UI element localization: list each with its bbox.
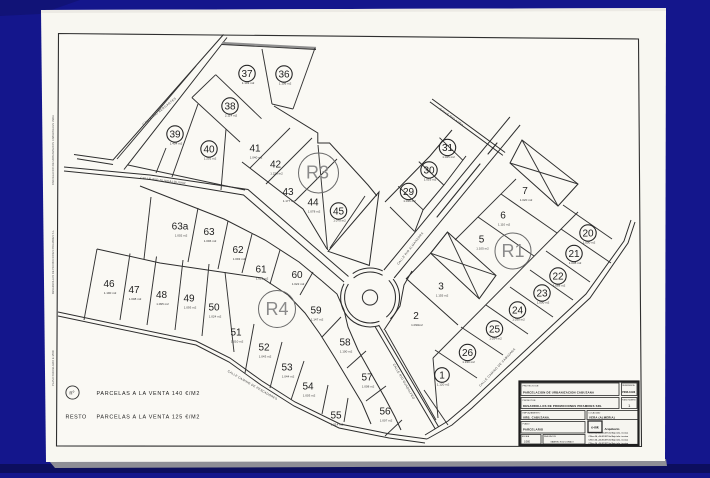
svg-text:C/Vera 34, +34-91-587 2m Bajo: C/Vera 34, +34-91-587 2m Bajo izda - tec… xyxy=(589,432,630,435)
svg-text:1.022 m2: 1.022 m2 xyxy=(292,282,305,286)
svg-text:55: 55 xyxy=(330,411,342,422)
svg-text:1.016 m2: 1.016 m2 xyxy=(403,199,416,203)
svg-text:1.103 m2: 1.103 m2 xyxy=(242,81,255,85)
svg-text:1.088 m2: 1.088 m2 xyxy=(553,284,566,288)
svg-text:53: 53 xyxy=(281,363,293,374)
svg-text:43: 43 xyxy=(282,187,294,198)
svg-text:59: 59 xyxy=(310,306,322,317)
svg-text:45: 45 xyxy=(333,207,345,218)
svg-text:URB. CABUZANA.: URB. CABUZANA. xyxy=(523,415,550,419)
svg-text:1.070 m2: 1.070 m2 xyxy=(333,219,346,223)
svg-text:37: 37 xyxy=(241,69,253,80)
svg-text:PARCELACION DE URBANIZACION CA: PARCELACION DE URBANIZACION CABUZANA EN … xyxy=(51,115,55,185)
svg-text:PROMOTOR:: PROMOTOR: xyxy=(523,400,537,402)
svg-text:1.030 m2: 1.030 m2 xyxy=(512,318,525,322)
svg-text:PARCELARIO: PARCELARIO xyxy=(523,427,544,431)
svg-text:54: 54 xyxy=(302,382,314,393)
svg-text:50: 50 xyxy=(208,303,220,314)
svg-text:1.014 m2: 1.014 m2 xyxy=(331,423,344,427)
svg-text:61: 61 xyxy=(255,265,267,276)
svg-text:47: 47 xyxy=(128,285,140,296)
svg-text:RESTO: RESTO xyxy=(66,415,87,421)
svg-text:PARCELAS A LA VENTA 12: PARCELAS A LA VENTA 125 €/M2 xyxy=(97,415,201,421)
svg-text:3: 3 xyxy=(438,282,444,293)
svg-text:1.008 m2: 1.008 m2 xyxy=(362,385,375,389)
svg-text:C/Vera 34, +34-91-587 2m Bajo: C/Vera 34, +34-91-587 2m Bajo izda - tec… xyxy=(589,442,630,445)
svg-text:29: 29 xyxy=(403,187,415,198)
svg-text:1.201 m2: 1.201 m2 xyxy=(204,157,217,161)
svg-text:1.003 m2: 1.003 m2 xyxy=(303,394,316,398)
svg-text:Arquitecto: Arquitecto xyxy=(605,427,620,431)
svg-text:1.038 m2: 1.038 m2 xyxy=(569,261,582,265)
svg-text:1.008 m2: 1.008 m2 xyxy=(129,297,142,301)
svg-text:C/Vera 34, +34-91-587 2m Bajo: C/Vera 34, +34-91-587 2m Bajo izda - tec… xyxy=(589,439,630,442)
svg-text:41: 41 xyxy=(249,144,261,155)
svg-text:n°: n° xyxy=(69,391,74,397)
svg-text:26: 26 xyxy=(462,348,474,359)
svg-text:1.093 m2: 1.093 m2 xyxy=(184,306,197,310)
svg-text:REALIZACION: REALIZACION xyxy=(544,435,557,438)
svg-text:DESARROLLOS DE PROMOCIONES PIR: DESARROLLOS DE PROMOCIONES PIRAMIDES S.L… xyxy=(51,229,55,294)
svg-text:48: 48 xyxy=(156,290,168,301)
svg-text:20: 20 xyxy=(582,229,594,240)
svg-text:1.190 m2: 1.190 m2 xyxy=(462,360,475,364)
svg-text:1.020 m2: 1.020 m2 xyxy=(520,198,533,202)
svg-text:24: 24 xyxy=(512,306,524,317)
svg-text:1.045 m2: 1.045 m2 xyxy=(442,155,455,159)
svg-text:1.106 m2: 1.106 m2 xyxy=(279,82,292,86)
svg-text:49: 49 xyxy=(183,294,195,305)
svg-text:5: 5 xyxy=(479,235,485,246)
svg-text:1.040 m2: 1.040 m2 xyxy=(250,156,263,160)
svg-text:36: 36 xyxy=(278,70,290,81)
svg-text:e-mk: e-mk xyxy=(591,425,599,429)
svg-text:1.095 m2: 1.095 m2 xyxy=(156,302,169,306)
svg-text:R1: R1 xyxy=(501,241,524,261)
svg-text:1.190 m2: 1.190 m2 xyxy=(104,291,117,295)
svg-text:PROYECTO DE:: PROYECTO DE: xyxy=(523,385,540,387)
svg-text:30: 30 xyxy=(423,166,435,177)
svg-text:6: 6 xyxy=(500,211,506,222)
svg-text:1: 1 xyxy=(439,371,445,382)
svg-text:1.000 m2: 1.000 m2 xyxy=(583,241,596,245)
svg-text:VERA (ALMERIA): VERA (ALMERIA) xyxy=(589,415,615,419)
svg-text:1.078 m2: 1.078 m2 xyxy=(308,210,321,214)
svg-text:40: 40 xyxy=(203,145,215,156)
svg-text:23: 23 xyxy=(536,289,548,300)
svg-text:1.110 m2: 1.110 m2 xyxy=(498,223,511,227)
svg-text:PLANO: PLANO xyxy=(523,423,530,426)
svg-text:44: 44 xyxy=(307,198,319,209)
svg-text:1.155 m2: 1.155 m2 xyxy=(436,294,449,298)
svg-text:7: 7 xyxy=(522,186,528,197)
svg-text:1.016 m2: 1.016 m2 xyxy=(424,178,437,182)
svg-text:46: 46 xyxy=(103,279,115,290)
svg-text:52: 52 xyxy=(258,343,270,354)
svg-text:PLANO PARCELARIO E.1/500: PLANO PARCELARIO E.1/500 xyxy=(51,350,55,386)
svg-text:1.177 m2: 1.177 m2 xyxy=(283,199,296,203)
svg-text:1.100 m2: 1.100 m2 xyxy=(340,350,353,354)
svg-text:LOCALIDAD: LOCALIDAD xyxy=(589,412,601,415)
svg-text:58: 58 xyxy=(339,338,351,349)
svg-text:57: 57 xyxy=(361,373,373,384)
svg-text:42: 42 xyxy=(270,160,282,171)
svg-text:2.114 m2: 2.114 m2 xyxy=(225,114,238,118)
svg-text:1.147 m2: 1.147 m2 xyxy=(311,318,324,322)
svg-text:DESARROLLOS DE PROMOCIONES: DESARROLLOS DE PROMOCIONES PIRAMIDES SRL xyxy=(523,404,602,408)
svg-text:1.093 m2: 1.093 m2 xyxy=(233,257,246,261)
svg-text:REFERENCIA: REFERENCIA xyxy=(622,384,635,387)
svg-text:1.007 m2: 1.007 m2 xyxy=(380,419,393,423)
svg-text:C/Vera 34, +34-91-587 2m Bajo: C/Vera 34, +34-91-587 2m Bajo izda - tec… xyxy=(589,435,630,438)
svg-text:56: 56 xyxy=(379,407,391,418)
svg-text:1.002 m2: 1.002 m2 xyxy=(175,234,188,238)
svg-text:PARCELACION DE URBANIZACION: PARCELACION DE URBANIZACION CABUZANA xyxy=(523,391,594,395)
svg-text:31: 31 xyxy=(442,143,454,154)
svg-text:ESCALA: ESCALA xyxy=(522,435,530,438)
svg-text:51: 51 xyxy=(230,328,242,339)
svg-text:PLANO NUMERO: PLANO NUMERO xyxy=(622,399,636,402)
svg-text:GABRIEL RUIZ JURADO: GABRIEL RUIZ JURADO xyxy=(550,441,574,444)
svg-text:1.105 m2: 1.105 m2 xyxy=(476,247,489,251)
svg-text:63a: 63a xyxy=(172,222,189,233)
svg-text:1.010 m2: 1.010 m2 xyxy=(231,340,244,344)
svg-text:60: 60 xyxy=(291,270,303,281)
svg-text:22: 22 xyxy=(552,272,564,283)
svg-text:1.021 m2: 1.021 m2 xyxy=(256,277,269,281)
svg-text:R3: R3 xyxy=(306,163,329,183)
svg-text:1.404 m2: 1.404 m2 xyxy=(170,142,183,146)
svg-text:R4: R4 xyxy=(265,299,288,319)
svg-text:1.096 m2: 1.096 m2 xyxy=(204,239,217,243)
svg-text:25: 25 xyxy=(489,325,501,336)
svg-text:1.034 m2: 1.034 m2 xyxy=(489,337,502,341)
svg-text:1.229 m2: 1.229 m2 xyxy=(270,172,283,176)
svg-text:PARCELAS A LA VENTA 14: PARCELAS A LA VENTA 140 €/M2 xyxy=(97,391,201,397)
svg-text:1.120 m2: 1.120 m2 xyxy=(437,383,450,387)
svg-text:63: 63 xyxy=(203,227,215,238)
svg-text:EMPLAZAMIENTO: EMPLAZAMIENTO xyxy=(523,412,541,415)
svg-text:21: 21 xyxy=(568,249,580,260)
svg-text:38: 38 xyxy=(224,102,236,113)
svg-text:P03/6-1/A03: P03/6-1/A03 xyxy=(622,391,636,394)
svg-text:1.044 m2: 1.044 m2 xyxy=(282,375,295,379)
svg-text:1.000 m2: 1.000 m2 xyxy=(537,301,550,305)
svg-text:39: 39 xyxy=(169,130,181,141)
svg-text:1.043 m2: 1.043 m2 xyxy=(259,355,272,359)
svg-text:1.024 m2: 1.024 m2 xyxy=(209,315,222,319)
svg-text:2: 2 xyxy=(413,311,419,322)
svg-text:1/500: 1/500 xyxy=(524,441,531,444)
svg-text:1.090m2: 1.090m2 xyxy=(411,323,423,327)
svg-text:62: 62 xyxy=(232,245,244,256)
